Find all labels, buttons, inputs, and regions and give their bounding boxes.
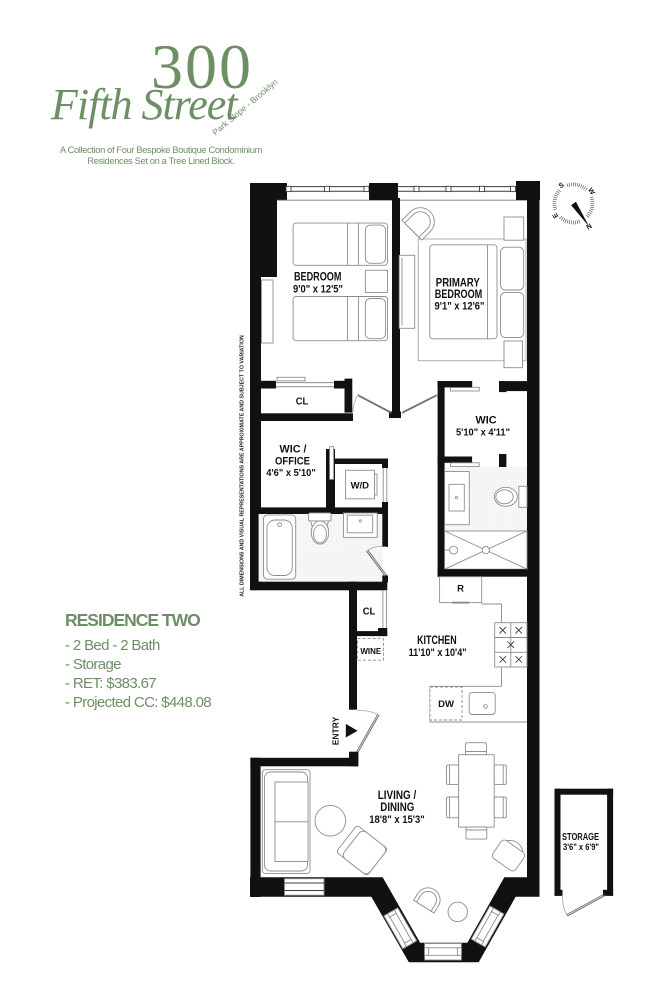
svg-text:9'0" x 12'5": 9'0" x 12'5" (293, 284, 343, 296)
svg-text:WINE: WINE (360, 647, 382, 656)
svg-text:N: N (584, 221, 592, 230)
svg-text:W/D: W/D (351, 481, 370, 492)
svg-text:18'8" x 15'3": 18'8" x 15'3" (369, 814, 425, 826)
svg-text:PRIMARY: PRIMARY (436, 277, 480, 289)
svg-text:LIVING /: LIVING / (378, 790, 417, 802)
svg-text:4'6" x 5'10": 4'6" x 5'10" (266, 467, 316, 479)
svg-text:OFFICE: OFFICE (275, 455, 310, 467)
svg-text:W: W (586, 187, 596, 197)
svg-text:CL: CL (296, 396, 309, 408)
svg-text:WIC: WIC (476, 415, 497, 427)
svg-text:S: S (558, 182, 566, 191)
svg-text:3'6" x 6'9": 3'6" x 6'9" (563, 842, 599, 853)
svg-text:CL: CL (363, 606, 376, 618)
svg-text:DINING: DINING (380, 802, 414, 814)
svg-text:E: E (552, 211, 561, 219)
svg-text:R: R (457, 584, 464, 595)
svg-text:WIC /: WIC / (280, 443, 307, 455)
svg-text:ENTRY: ENTRY (331, 716, 341, 745)
svg-text:KITCHEN: KITCHEN (417, 635, 457, 647)
svg-text:9'1" x 12'6": 9'1" x 12'6" (435, 301, 485, 313)
svg-text:BEDROOM: BEDROOM (435, 289, 483, 301)
svg-text:ALL DIMENSIONS AND VISUAL REPR: ALL DIMENSIONS AND VISUAL REPRESENTATION… (240, 335, 246, 597)
svg-text:5'10" x 4'11": 5'10" x 4'11" (456, 427, 510, 439)
svg-text:11'10" x 10'4": 11'10" x 10'4" (409, 647, 467, 659)
svg-text:BEDROOM: BEDROOM (294, 272, 342, 284)
svg-text:DW: DW (438, 699, 454, 710)
